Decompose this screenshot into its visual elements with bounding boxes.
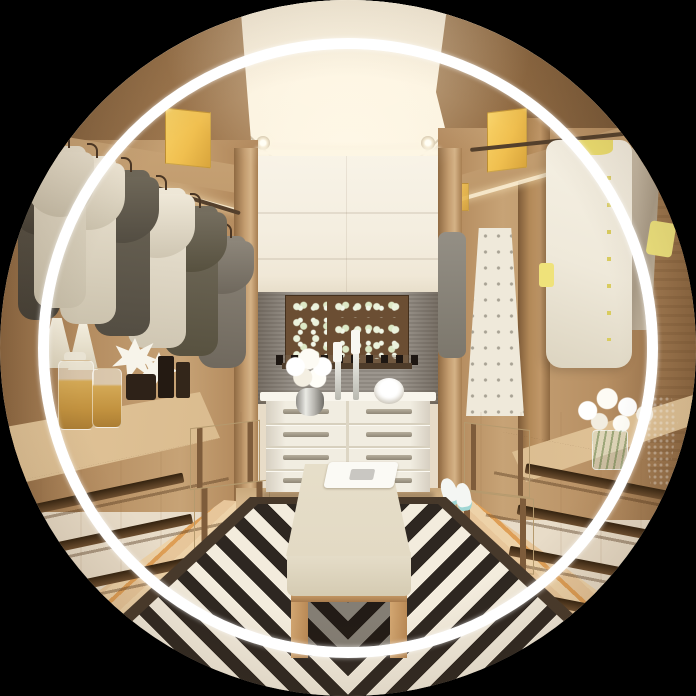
photo-circle (0, 0, 696, 696)
ring-border (38, 38, 658, 658)
circular-photo-card (0, 0, 696, 696)
